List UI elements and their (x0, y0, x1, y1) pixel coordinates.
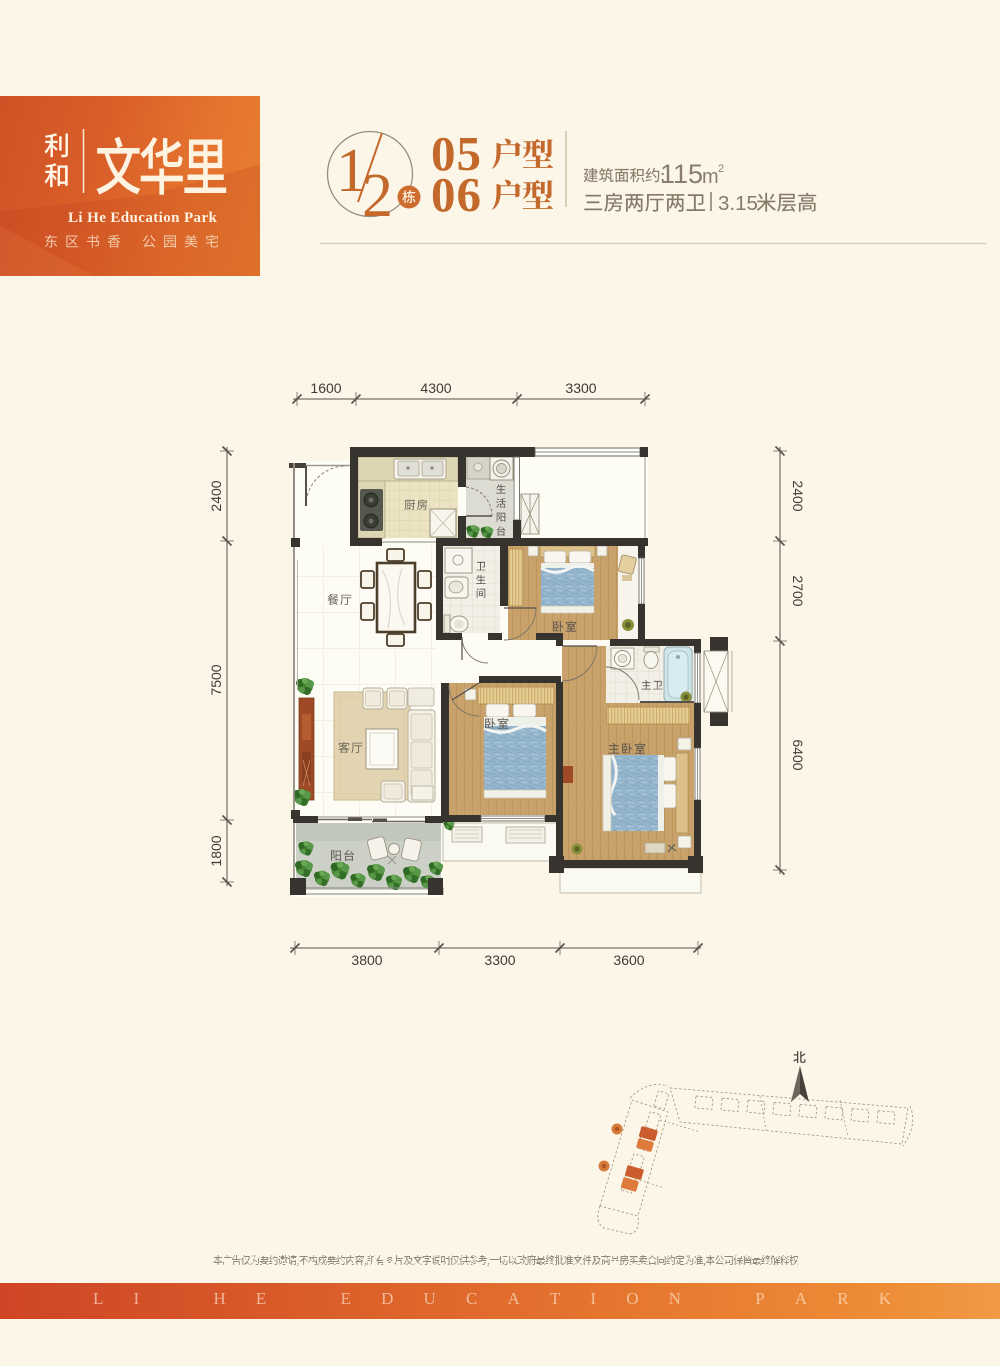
svg-text:3600: 3600 (613, 952, 644, 968)
svg-text:2400: 2400 (790, 480, 806, 511)
svg-text:2: 2 (718, 163, 724, 175)
svg-text:m: m (702, 166, 719, 188)
svg-text:3800: 3800 (351, 952, 382, 968)
svg-text:3300: 3300 (484, 952, 515, 968)
svg-text:3.15: 3.15 (718, 192, 758, 215)
svg-text:7500: 7500 (208, 664, 224, 695)
svg-text:1800: 1800 (208, 835, 224, 866)
svg-text:6400: 6400 (790, 739, 806, 770)
svg-text:115: 115 (660, 159, 703, 189)
svg-text:2400: 2400 (208, 480, 224, 511)
svg-text:2: 2 (362, 162, 393, 230)
svg-text:2700: 2700 (790, 575, 806, 606)
svg-text:1600: 1600 (310, 380, 341, 396)
svg-text:4300: 4300 (420, 380, 451, 396)
svg-text:06: 06 (431, 167, 482, 222)
svg-text:3300: 3300 (565, 380, 596, 396)
